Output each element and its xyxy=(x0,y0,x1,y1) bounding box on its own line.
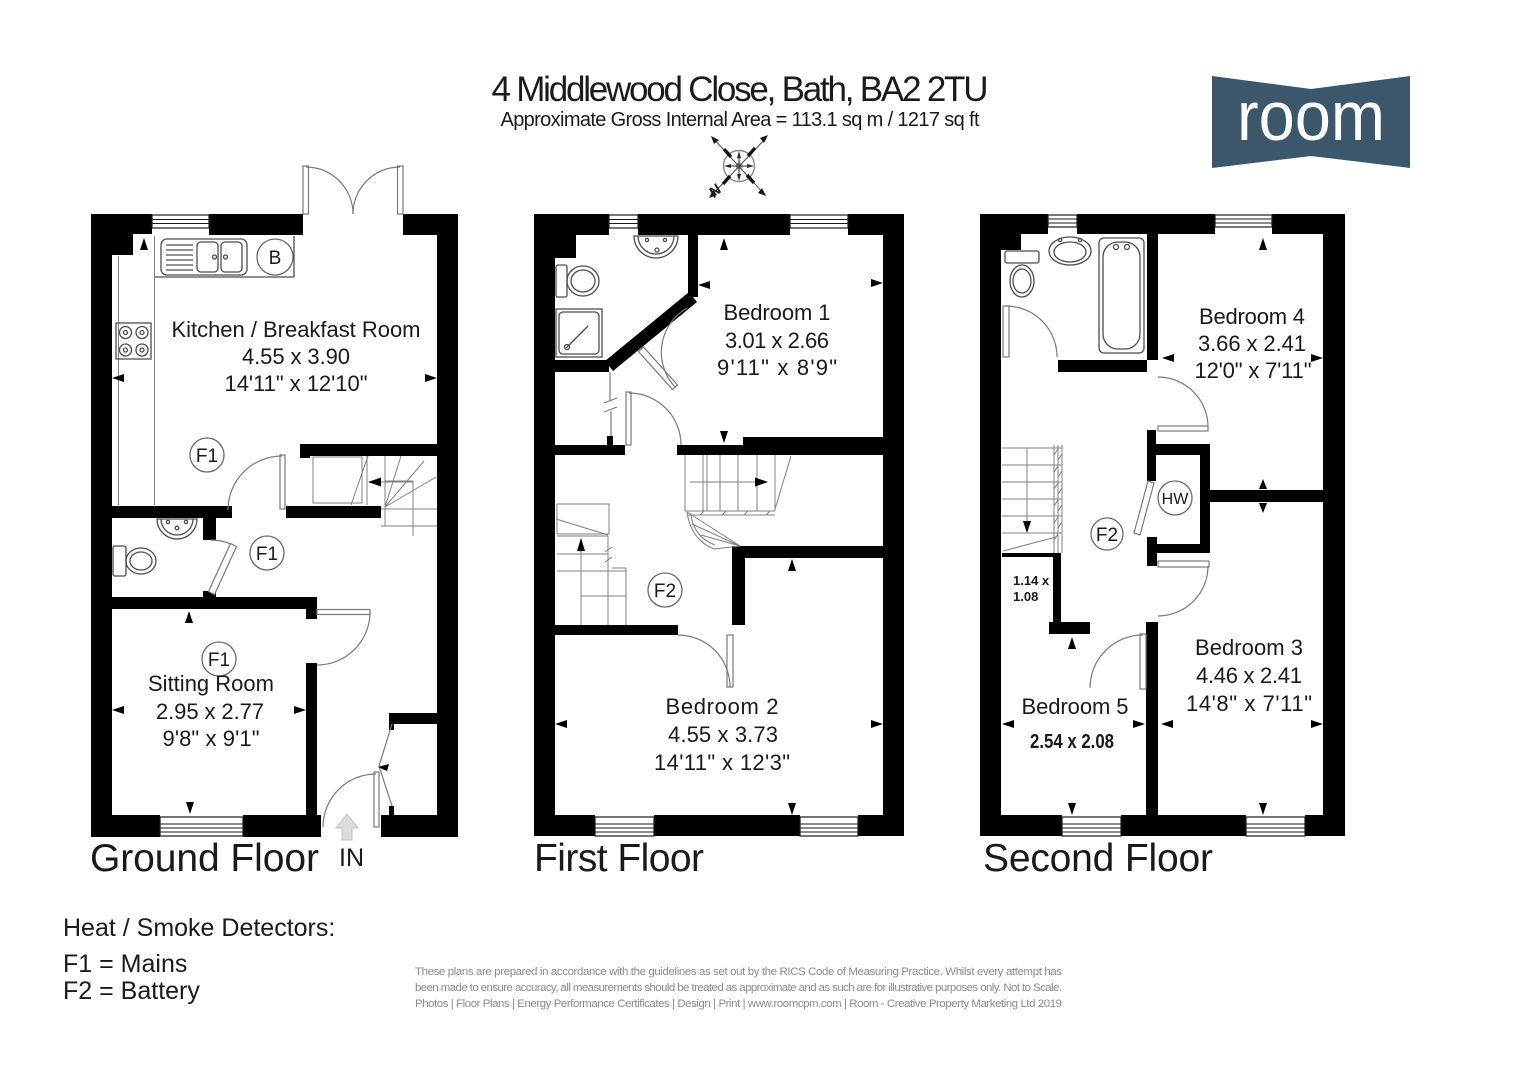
svg-text:F1 = Mains: F1 = Mains xyxy=(63,950,187,978)
svg-text:Kitchen / Breakfast Room: Kitchen / Breakfast Room xyxy=(172,317,421,342)
svg-text:2.95 x 2.77: 2.95 x 2.77 xyxy=(156,699,264,724)
svg-text:Bedroom 5: Bedroom 5 xyxy=(1022,694,1129,719)
svg-text:Bedroom 4: Bedroom 4 xyxy=(1199,304,1305,329)
svg-text:Photos | Floor Plans | Energy: Photos | Floor Plans | Energy Performanc… xyxy=(415,998,1062,1010)
svg-text:Bedroom 3: Bedroom 3 xyxy=(1195,635,1303,660)
svg-text:F1: F1 xyxy=(208,650,230,671)
svg-text:F1: F1 xyxy=(256,544,278,565)
svg-text:12'0" x 7'11": 12'0" x 7'11" xyxy=(1195,358,1312,383)
svg-text:Approximate Gross Internal Are: Approximate Gross Internal Area = 113.1 … xyxy=(501,109,980,131)
svg-text:4.55 x 3.90: 4.55 x 3.90 xyxy=(242,344,350,369)
svg-text:9'8" x 9'1": 9'8" x 9'1" xyxy=(163,726,260,751)
svg-text:Ground Floor: Ground Floor xyxy=(90,837,319,880)
svg-text:IN: IN xyxy=(339,844,364,872)
svg-text:F2: F2 xyxy=(654,581,676,602)
svg-text:F2: F2 xyxy=(1096,525,1118,546)
svg-text:9'11" x 8'9": 9'11" x 8'9" xyxy=(717,355,837,380)
svg-text:2.54 x 2.08: 2.54 x 2.08 xyxy=(1030,731,1114,753)
svg-text:These plans are prepared in ac: These plans are prepared in accordance w… xyxy=(415,966,1062,978)
svg-text:Heat / Smoke Detectors:: Heat / Smoke Detectors: xyxy=(63,914,335,942)
svg-text:F2 = Battery: F2 = Battery xyxy=(63,977,200,1005)
svg-text:F1: F1 xyxy=(196,446,218,467)
svg-text:4 Middlewood Close, Bath, BA2: 4 Middlewood Close, Bath, BA2 2TU xyxy=(492,70,989,109)
svg-text:Second Floor: Second Floor xyxy=(983,837,1213,880)
svg-text:Bedroom 1: Bedroom 1 xyxy=(724,300,831,325)
svg-text:First Floor: First Floor xyxy=(534,837,704,880)
svg-text:HW: HW xyxy=(1162,491,1190,508)
svg-text:room: room xyxy=(1237,77,1385,155)
svg-text:4.55 x 3.73: 4.55 x 3.73 xyxy=(668,722,778,747)
svg-text:Bedroom 2: Bedroom 2 xyxy=(666,694,779,719)
svg-text:3.66 x 2.41: 3.66 x 2.41 xyxy=(1198,331,1306,356)
svg-text:3.01 x 2.66: 3.01 x 2.66 xyxy=(725,328,829,353)
svg-text:B: B xyxy=(269,248,282,269)
svg-text:4.46 x 2.41: 4.46 x 2.41 xyxy=(1196,663,1302,688)
svg-text:14'11" x 12'10": 14'11" x 12'10" xyxy=(225,371,368,396)
svg-text:Sitting Room: Sitting Room xyxy=(148,671,274,696)
svg-text:been made to ensure accuracy,: been made to ensure accuracy, all measur… xyxy=(415,982,1062,994)
svg-text:14'8" x 7'11": 14'8" x 7'11" xyxy=(1186,691,1312,716)
svg-text:14'11" x 12'3": 14'11" x 12'3" xyxy=(654,750,790,775)
svg-text:1.14 x: 1.14 x xyxy=(1013,573,1050,588)
svg-text:1.08: 1.08 xyxy=(1013,589,1038,604)
